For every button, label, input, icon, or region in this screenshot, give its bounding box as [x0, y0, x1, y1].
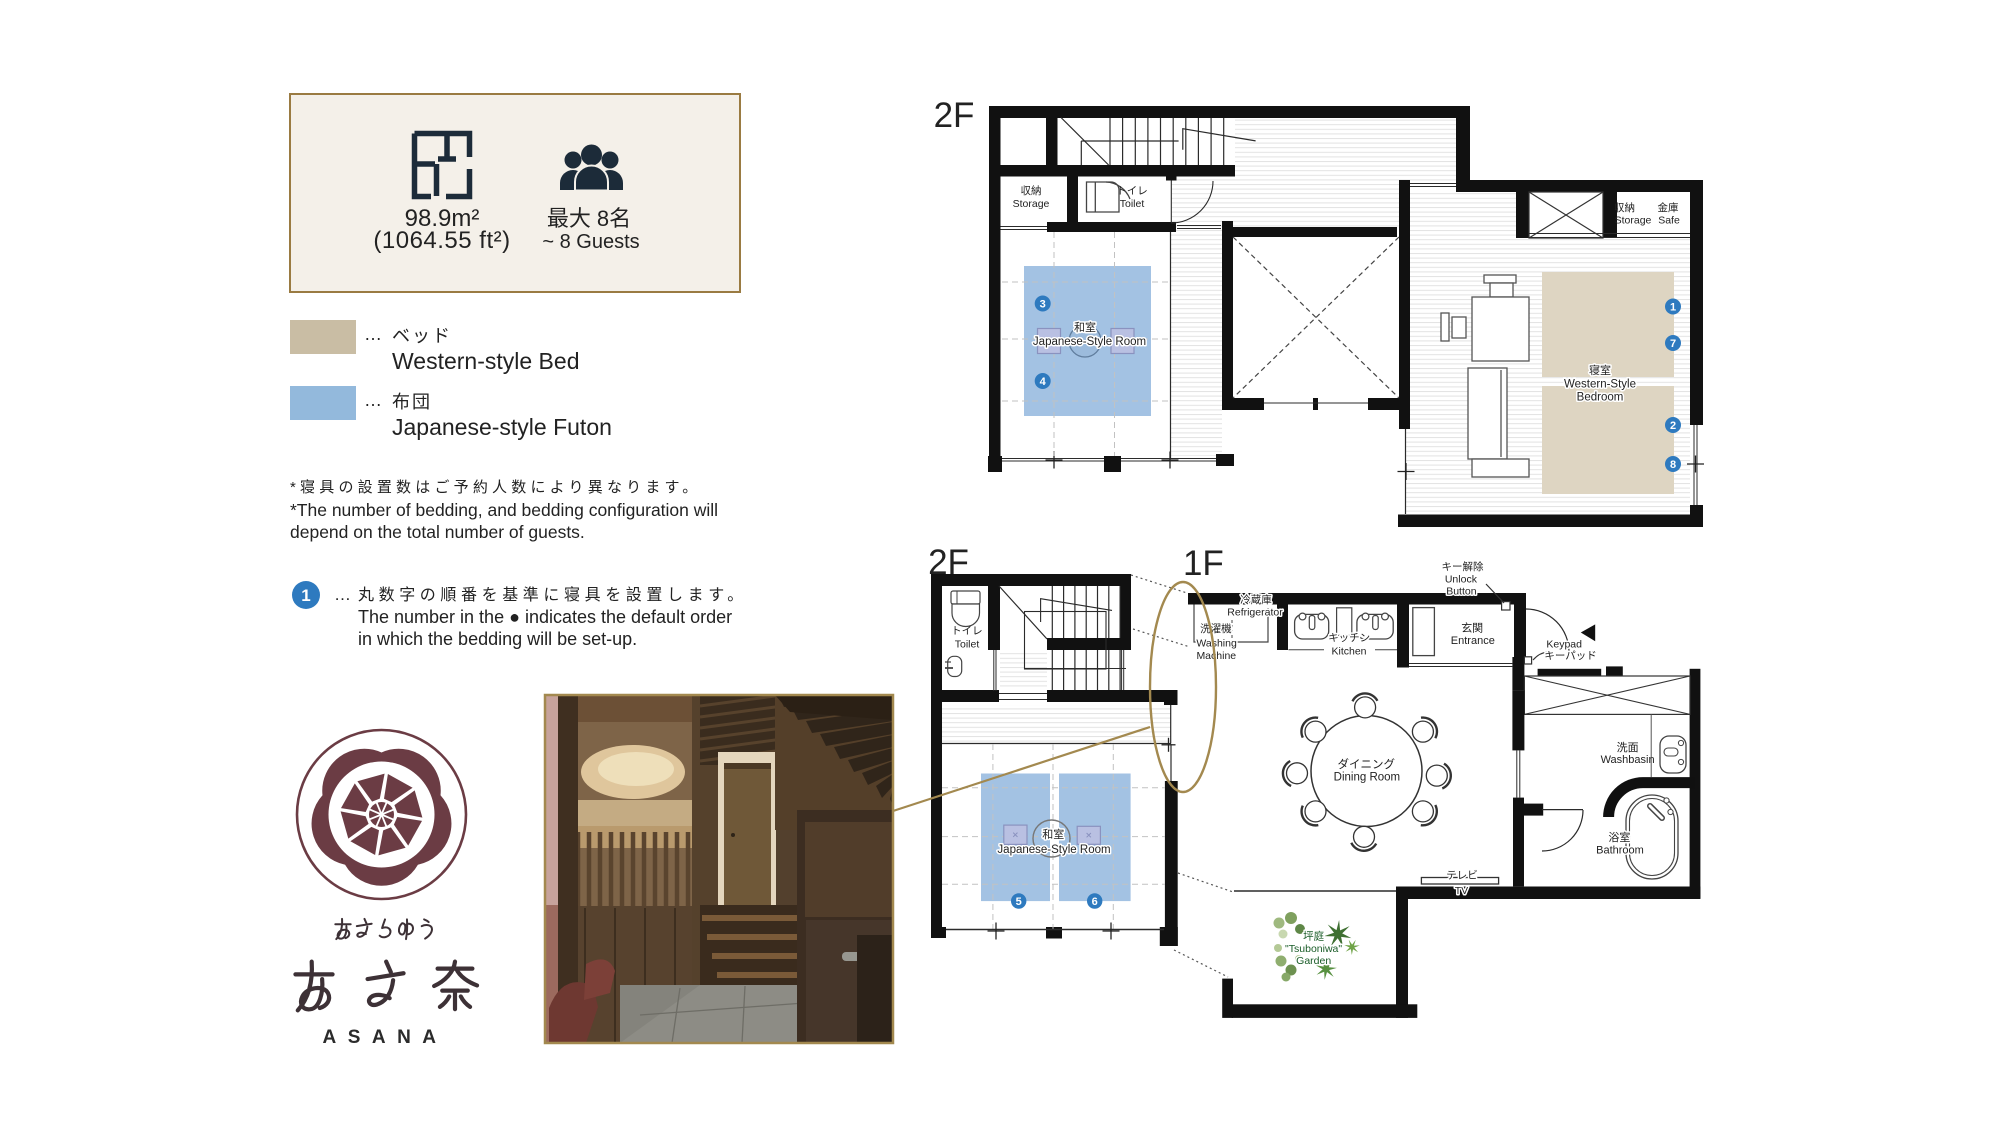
svg-text:収納: 収納 [1021, 184, 1042, 197]
svg-text:Storage: Storage [1615, 215, 1652, 227]
svg-text:The number in the ● indicates: The number in the ● indicates the defaul… [358, 607, 732, 627]
svg-text:(1064.55 ft²): (1064.55 ft²) [373, 227, 510, 254]
svg-text:Dining Room: Dining Room [1334, 772, 1400, 784]
svg-text:Toilet: Toilet [955, 639, 980, 651]
svg-text:寝室: 寝室 [1589, 363, 1611, 377]
svg-text:Unlock: Unlock [1445, 574, 1478, 586]
svg-text:*The number of bedding, and be: *The number of bedding, and bedding conf… [290, 500, 718, 520]
svg-text:Button: Button [1446, 586, 1477, 598]
svg-text:トイレ: トイレ [1116, 185, 1148, 197]
svg-text:…: … [364, 324, 382, 344]
svg-text:Entrance: Entrance [1451, 635, 1495, 647]
svg-text:丸数字の順番を基準に寝具を設置します。: 丸数字の順番を基準に寝具を設置します。 [358, 585, 748, 604]
svg-text:*寝具の設置数はご予約人数により異なります。: *寝具の設置数はご予約人数により異なります。 [290, 478, 701, 496]
svg-text:Garden: Garden [1296, 955, 1331, 967]
svg-text:トイレ: トイレ [951, 625, 983, 637]
svg-text:最大 8名: 最大 8名 [547, 206, 631, 231]
svg-text:2F: 2F [934, 96, 975, 135]
svg-text:洗濯機: 洗濯機 [1200, 622, 1232, 635]
svg-text:2: 2 [1670, 420, 1676, 432]
svg-text:1: 1 [1670, 301, 1676, 313]
svg-text:Western-style Bed: Western-style Bed [392, 348, 579, 374]
svg-text:ベッド: ベッド [392, 326, 452, 346]
svg-text:浴室: 浴室 [1608, 830, 1630, 844]
svg-text:5: 5 [1016, 896, 1022, 908]
svg-text:7: 7 [1670, 338, 1676, 350]
svg-text:Keypad: Keypad [1546, 638, 1582, 650]
svg-text:ダイニング: ダイニング [1338, 757, 1396, 771]
svg-text:Japanese-Style Room: Japanese-Style Room [1033, 336, 1146, 348]
svg-text:Washing: Washing [1196, 638, 1237, 650]
svg-text:金庫: 金庫 [1658, 201, 1680, 214]
svg-text:和室: 和室 [1042, 827, 1064, 841]
svg-text:キー解除: キー解除 [1442, 560, 1484, 573]
svg-text:…: … [334, 585, 351, 604]
svg-text:Storage: Storage [1013, 198, 1050, 210]
svg-text:Washbasin: Washbasin [1601, 754, 1655, 766]
svg-text:Japanese-style Futon: Japanese-style Futon [392, 414, 612, 440]
svg-text:テレビ: テレビ [1446, 870, 1478, 882]
svg-text:ASANA: ASANA [322, 1027, 447, 1048]
svg-text:坪庭: 坪庭 [1303, 930, 1325, 943]
svg-text:Western-Style: Western-Style [1564, 379, 1636, 391]
svg-text:Bathroom: Bathroom [1596, 845, 1644, 857]
svg-text:洗面: 洗面 [1617, 741, 1639, 754]
svg-text:Refrigerator: Refrigerator [1227, 607, 1283, 619]
svg-text:4: 4 [1040, 376, 1047, 388]
svg-text:Toilet: Toilet [1120, 198, 1145, 210]
svg-text:in which the bedding will be s: in which the bedding will be set-up. [358, 629, 637, 649]
svg-text:"Tsuboniwa": "Tsuboniwa" [1285, 943, 1342, 955]
svg-text:冷蔵庫: 冷蔵庫 [1240, 593, 1272, 606]
svg-text:キッチン: キッチン [1328, 632, 1370, 644]
svg-text:3: 3 [1040, 298, 1046, 310]
svg-text:Japanese-Style Room: Japanese-Style Room [997, 844, 1110, 856]
svg-text:Safe: Safe [1658, 215, 1680, 227]
svg-text:布団: 布団 [392, 392, 432, 412]
svg-text:玄関: 玄関 [1461, 621, 1483, 635]
svg-text:TV: TV [1455, 885, 1468, 897]
svg-text:1F: 1F [1183, 544, 1224, 583]
svg-text:Machine: Machine [1196, 650, 1236, 662]
svg-text:収納: 収納 [1614, 201, 1635, 214]
svg-text:8: 8 [1670, 459, 1676, 471]
svg-text:キーパッド: キーパッド [1544, 650, 1596, 662]
svg-text:~ 8 Guests: ~ 8 Guests [542, 231, 639, 253]
svg-text:depend on the total number of: depend on the total number of guests. [290, 522, 585, 542]
svg-text:…: … [364, 390, 382, 410]
svg-text:1: 1 [301, 586, 310, 605]
svg-text:6: 6 [1092, 896, 1098, 908]
svg-text:Bedroom: Bedroom [1577, 392, 1624, 404]
svg-text:Kitchen: Kitchen [1331, 645, 1366, 657]
svg-text:和室: 和室 [1074, 320, 1096, 334]
